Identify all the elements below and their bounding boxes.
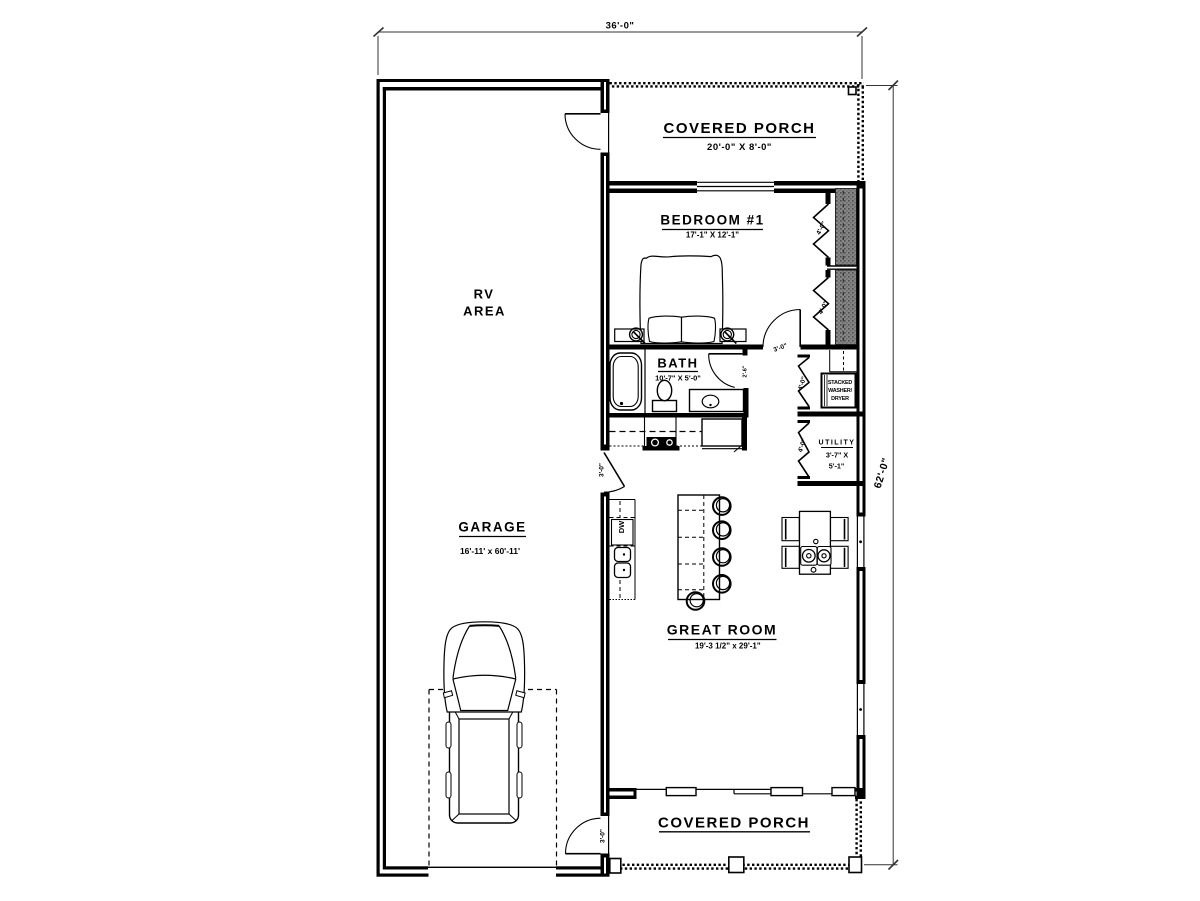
svg-text:3'-0": 3'-0"	[599, 463, 606, 477]
svg-text:GREAT ROOM: GREAT ROOM	[667, 622, 777, 638]
svg-text:20'-0" X 8'-0": 20'-0" X 8'-0"	[707, 142, 772, 153]
svg-text:17'-1" X 12'-1": 17'-1" X 12'-1"	[686, 231, 739, 240]
svg-text:UTILITY: UTILITY	[819, 440, 856, 447]
svg-text:3'-0": 3'-0"	[600, 829, 607, 843]
svg-text:STACKED: STACKED	[828, 380, 853, 386]
svg-text:WASHER/: WASHER/	[828, 388, 852, 394]
svg-text:DRYER: DRYER	[831, 396, 849, 402]
svg-text:16'-11' x 60'-11': 16'-11' x 60'-11'	[460, 546, 520, 556]
svg-text:COVERED PORCH: COVERED PORCH	[663, 120, 815, 137]
svg-text:2'-6": 2'-6"	[743, 365, 749, 377]
svg-text:GARAGE: GARAGE	[458, 520, 526, 535]
svg-text:5'-1": 5'-1"	[829, 462, 845, 471]
svg-text:19'-3 1/2" x 29'-1": 19'-3 1/2" x 29'-1"	[695, 642, 761, 651]
svg-text:AREA: AREA	[463, 304, 506, 319]
svg-text:BEDROOM #1: BEDROOM #1	[660, 213, 764, 228]
svg-text:DW: DW	[617, 520, 626, 533]
svg-text:3'-7" X: 3'-7" X	[826, 451, 849, 460]
svg-text:36'-0": 36'-0"	[606, 21, 635, 32]
svg-text:BATH: BATH	[657, 356, 698, 371]
svg-text:COVERED PORCH: COVERED PORCH	[658, 815, 810, 832]
svg-text:RV: RV	[474, 287, 495, 302]
